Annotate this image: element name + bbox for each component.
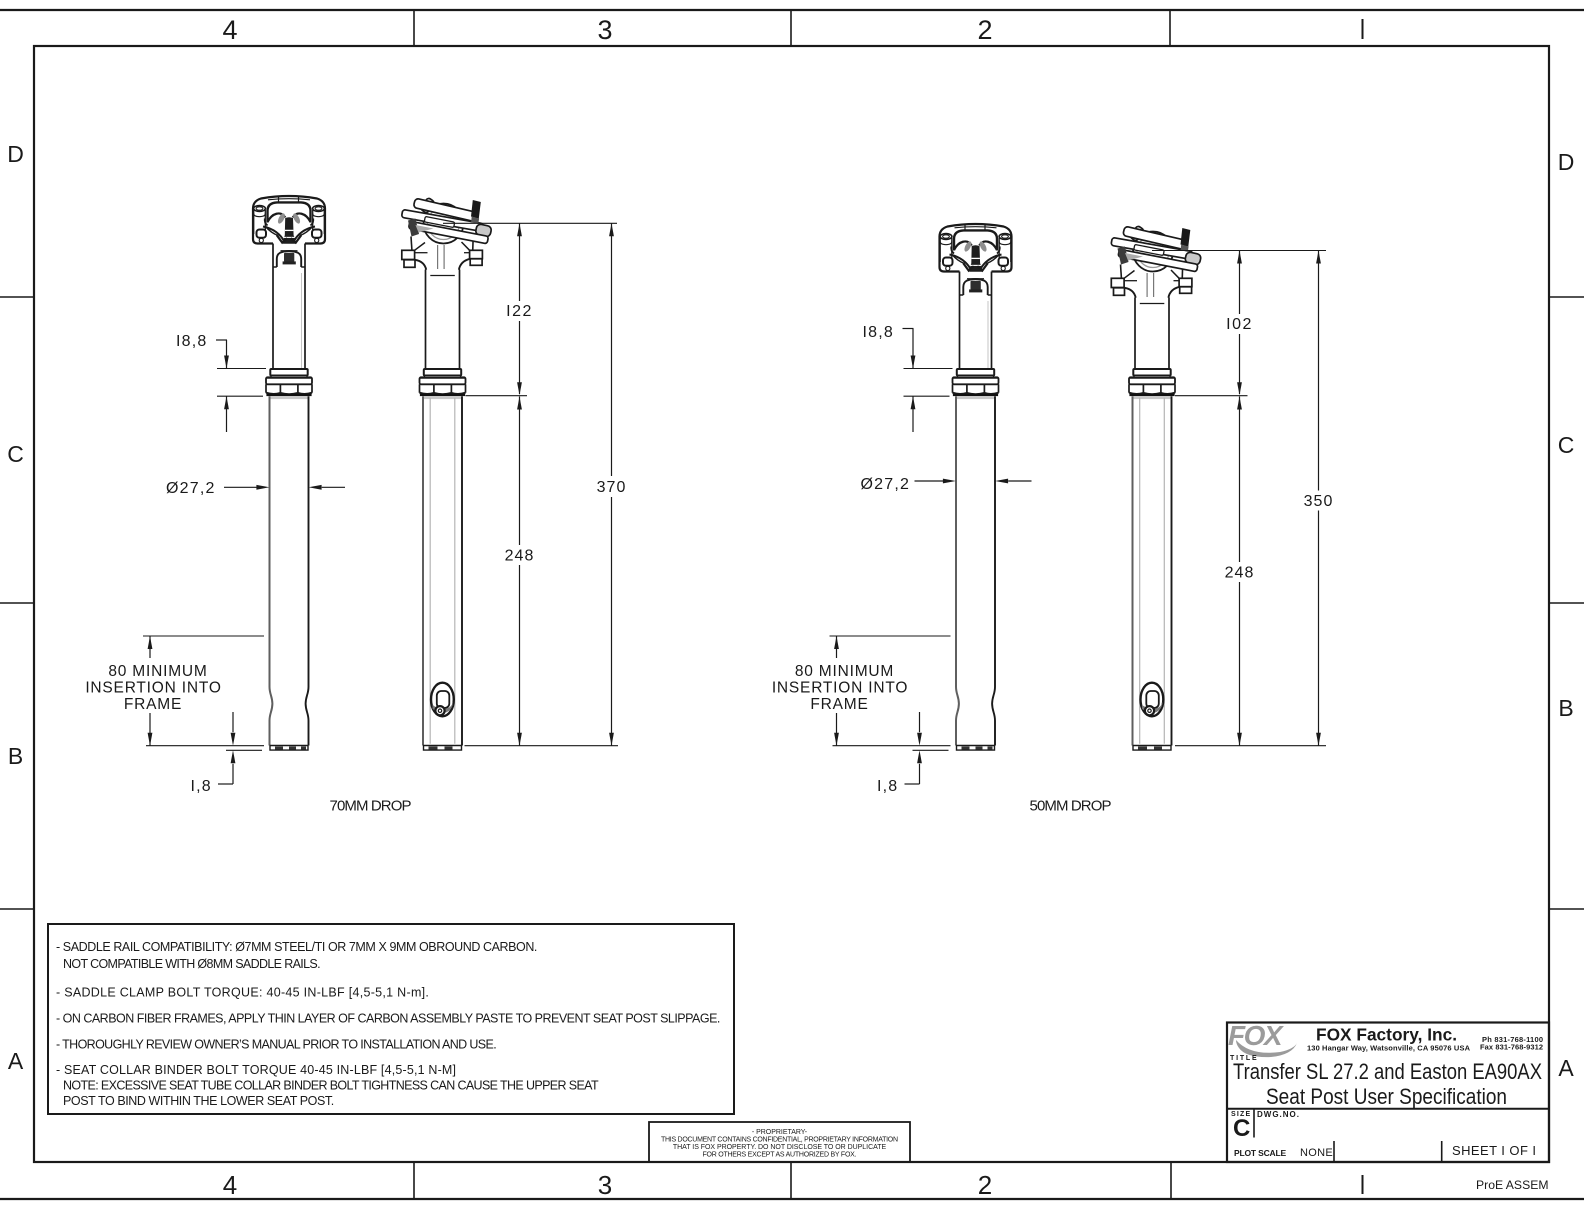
svg-text:70MM DROP: 70MM DROP (330, 798, 412, 815)
svg-text:Ø27,2: Ø27,2 (166, 480, 216, 497)
svg-text:THAT IS FOX PROPERTY. DO NOT: THAT IS FOX PROPERTY. DO NOT DISCLOSE TO… (673, 1144, 887, 1151)
svg-text:248: 248 (505, 548, 535, 565)
svg-text:50MM DROP: 50MM DROP (1030, 798, 1112, 815)
svg-text:80 MINIMUM: 80 MINIMUM (795, 663, 894, 680)
svg-text:I,8: I,8 (877, 778, 898, 795)
svg-text:C: C (1233, 1115, 1250, 1142)
svg-text:NOT COMPATIBLE WITH Ø8MM SADDL: NOT COMPATIBLE WITH Ø8MM SADDLE RAILS. (63, 957, 321, 971)
svg-text:4: 4 (222, 15, 237, 45)
svg-text:3: 3 (597, 15, 612, 45)
svg-text:Fax 831-768-9312: Fax 831-768-9312 (1480, 1043, 1543, 1052)
svg-text:- SEAT COLLAR BINDER BOLT TORQ: - SEAT COLLAR BINDER BOLT TORQUE 40-45 I… (56, 1063, 456, 1077)
svg-text:350: 350 (1304, 493, 1334, 510)
svg-text:- PROPRIETARY-: - PROPRIETARY- (752, 1129, 808, 1136)
svg-text:Ø27,2: Ø27,2 (861, 476, 911, 493)
svg-text:FRAME: FRAME (124, 696, 182, 713)
svg-text:D: D (7, 141, 24, 167)
svg-text:ProE ASSEM: ProE ASSEM (1476, 1178, 1548, 1192)
svg-text:INSERTION INTO: INSERTION INTO (772, 680, 908, 697)
svg-text:- SADDLE RAIL COMPATIBILITY: Ø: - SADDLE RAIL COMPATIBILITY: Ø7MM STEEL/… (56, 940, 537, 954)
svg-text:Transfer SL 27.2 and Easton EA: Transfer SL 27.2 and Easton EA90AX (1233, 1059, 1542, 1084)
svg-text:FOX: FOX (1228, 1020, 1285, 1051)
svg-text:C: C (1558, 432, 1575, 458)
svg-text:B: B (1558, 695, 1573, 721)
svg-text:4: 4 (223, 1170, 237, 1200)
svg-text:SHEET I OF I: SHEET I OF I (1452, 1143, 1536, 1158)
svg-text:2: 2 (977, 15, 992, 45)
svg-text:248: 248 (1225, 565, 1255, 582)
svg-text:FOX Factory, Inc.: FOX Factory, Inc. (1316, 1025, 1457, 1045)
svg-text:370: 370 (597, 479, 627, 496)
svg-text:THIS DOCUMENT CONTAINS CONFIDE: THIS DOCUMENT CONTAINS CONFIDENTIAL, PRO… (661, 1137, 898, 1144)
svg-text:- THOROUGHLY REVIEW OWNER’S MA: - THOROUGHLY REVIEW OWNER’S MANUAL PRIOR… (56, 1037, 497, 1051)
svg-text:I8,8: I8,8 (176, 333, 208, 350)
svg-text:130 Hangar Way, Watsonville, C: 130 Hangar Way, Watsonville, CA 95076 US… (1307, 1044, 1471, 1053)
svg-text:PLOT SCALE: PLOT SCALE (1234, 1148, 1287, 1158)
svg-text:INSERTION INTO: INSERTION INTO (85, 680, 221, 697)
svg-text:POST TO BIND WITHIN THE LOWER: POST TO BIND WITHIN THE LOWER SEAT POST. (63, 1094, 334, 1108)
svg-text:2: 2 (978, 1170, 992, 1200)
svg-text:A: A (1558, 1055, 1574, 1081)
svg-text:3: 3 (598, 1170, 612, 1200)
svg-text:NOTE: EXCESSIVE SEAT TUBE COLL: NOTE: EXCESSIVE SEAT TUBE COLLAR BINDER … (63, 1078, 599, 1092)
svg-text:FOR OTHERS EXCEPT AS AUTHORIZE: FOR OTHERS EXCEPT AS AUTHORIZED BY FOX. (702, 1152, 856, 1159)
svg-text:B: B (8, 743, 23, 769)
svg-text:D: D (1558, 149, 1575, 175)
svg-text:I,8: I,8 (191, 778, 212, 795)
svg-text:A: A (8, 1048, 24, 1074)
svg-text:I02: I02 (1226, 316, 1253, 333)
svg-text:- ON CARBON FIBER FRAMES, APPL: - ON CARBON FIBER FRAMES, APPLY THIN LAY… (56, 1012, 720, 1026)
svg-text:Seat Post User Specification: Seat Post User Specification (1266, 1084, 1507, 1109)
svg-text:DWG.NO.: DWG.NO. (1257, 1110, 1300, 1119)
svg-text:- SADDLE CLAMP BOLT TORQUE: 40: - SADDLE CLAMP BOLT TORQUE: 40-45 IN-LBF… (56, 986, 429, 1000)
svg-text:FRAME: FRAME (810, 696, 868, 713)
svg-text:I22: I22 (506, 303, 533, 320)
svg-text:NONE: NONE (1300, 1147, 1333, 1159)
svg-text:80 MINIMUM: 80 MINIMUM (108, 663, 207, 680)
svg-text:I8,8: I8,8 (863, 324, 895, 341)
svg-text:C: C (7, 441, 24, 467)
